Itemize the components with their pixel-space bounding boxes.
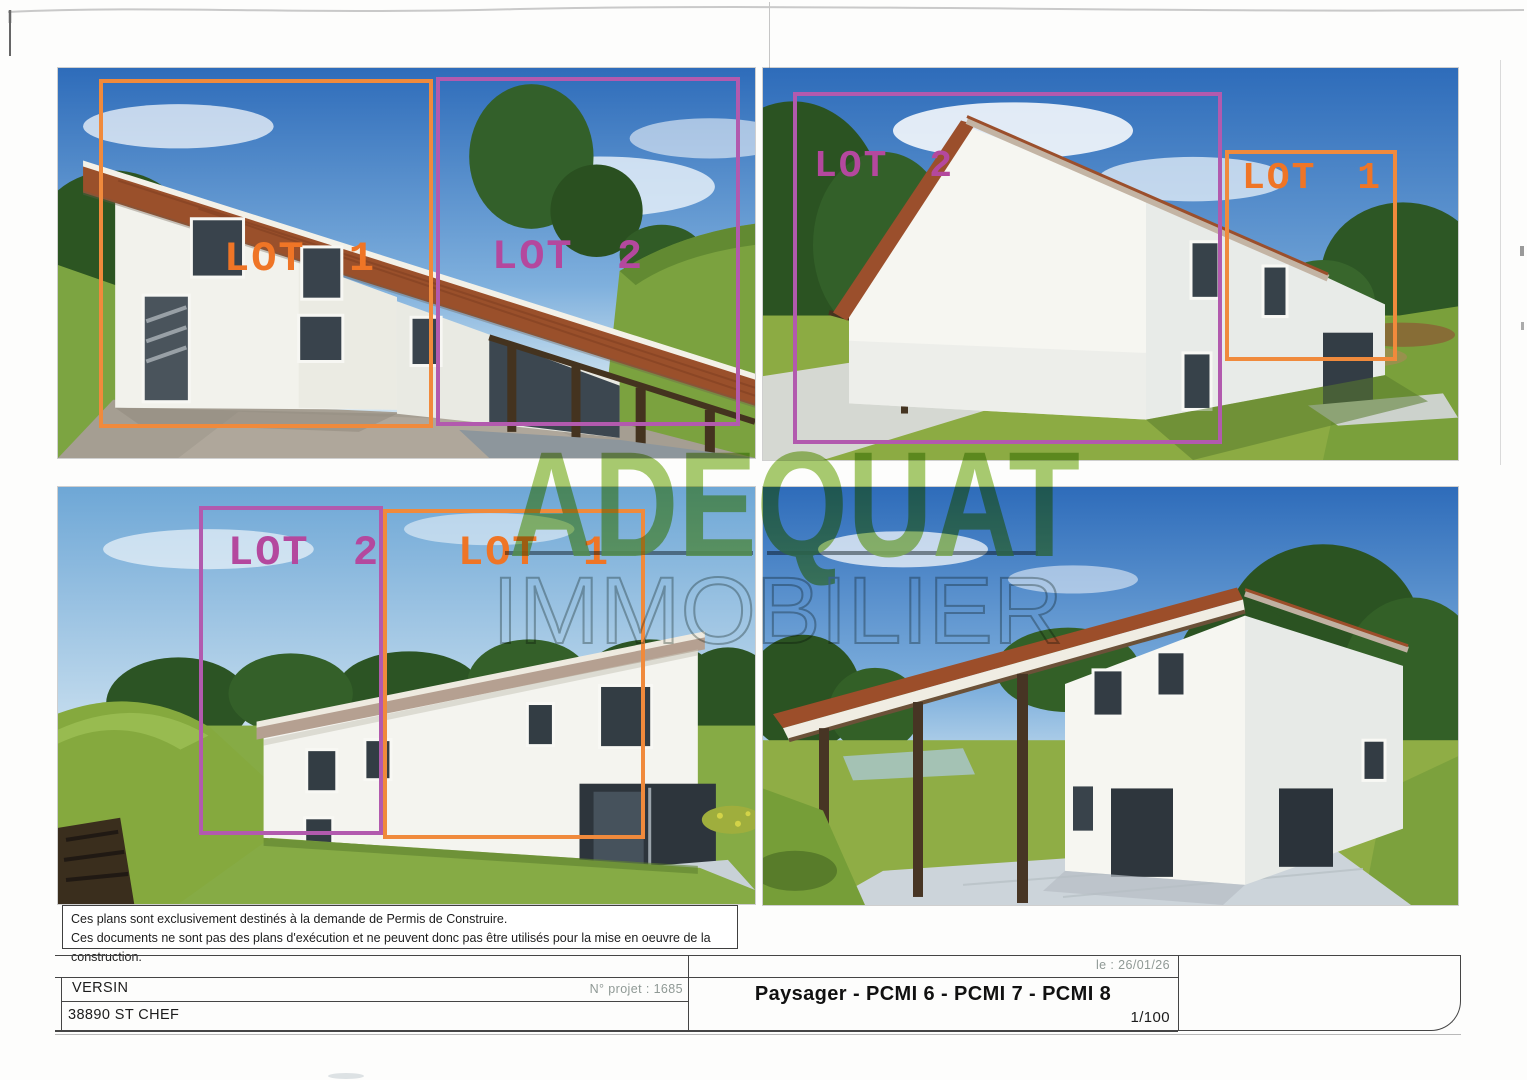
scan-left-corner-mark: [9, 12, 11, 56]
scan-bottom-smudge: [328, 1073, 364, 1079]
scan-top-edge-line: [0, 0, 1527, 24]
titleblock-client: VERSIN: [72, 980, 128, 996]
titleblock-empty-right-cell: [1178, 955, 1461, 1031]
titleblock-left-edge: [61, 977, 62, 1031]
titleblock-location: 38890 ST CHEF: [68, 1007, 179, 1023]
lot-2-label-top-right: LOT 2: [814, 148, 954, 186]
photo-bottom-right-render: [763, 487, 1458, 905]
disclaimer-line-1: Ces plans sont exclusivement destinés à …: [71, 910, 729, 929]
lot-1-label-bottom-left: LOT 1: [458, 532, 610, 574]
titleblock-bottom-rule-echo: [55, 1034, 1461, 1035]
titleblock-mid-rule: [55, 977, 1178, 978]
scan-right-edge-line: [1500, 60, 1501, 465]
lot-1-label-top-left: LOT 1: [224, 238, 376, 280]
titleblock-drawing-title: Paysager - PCMI 6 - PCMI 7 - PCMI 8: [688, 983, 1178, 1006]
scan-right-speck-2: [1521, 322, 1524, 330]
titleblock-date: le : 26/01/26: [970, 958, 1170, 972]
scan-fold-crease: [769, 2, 770, 68]
disclaimer-line-2: Ces documents ne sont pas des plans d'ex…: [71, 929, 729, 967]
lot-2-label-bottom-left: LOT 2: [228, 532, 380, 574]
titleblock-scale: 1/100: [1000, 1009, 1170, 1026]
lot-2-label-top-left: LOT 2: [492, 236, 644, 278]
titleblock-versin-underline: [62, 1001, 688, 1002]
scan-right-speck-1: [1520, 246, 1524, 256]
disclaimer-box: Ces plans sont exclusivement destinés à …: [62, 905, 738, 949]
titleblock-project-number: N° projet : 1685: [483, 982, 683, 996]
lot-1-label-top-right: LOT 1: [1242, 160, 1382, 198]
titleblock-bottom-rule: [55, 1030, 1178, 1032]
house-render-pergola-terrace: [763, 487, 1458, 905]
scanned-permit-sheet: LOT 1 LOT 2 LOT 2 LOT 1 LOT 2 LOT 1 ADEQ…: [0, 0, 1527, 1080]
